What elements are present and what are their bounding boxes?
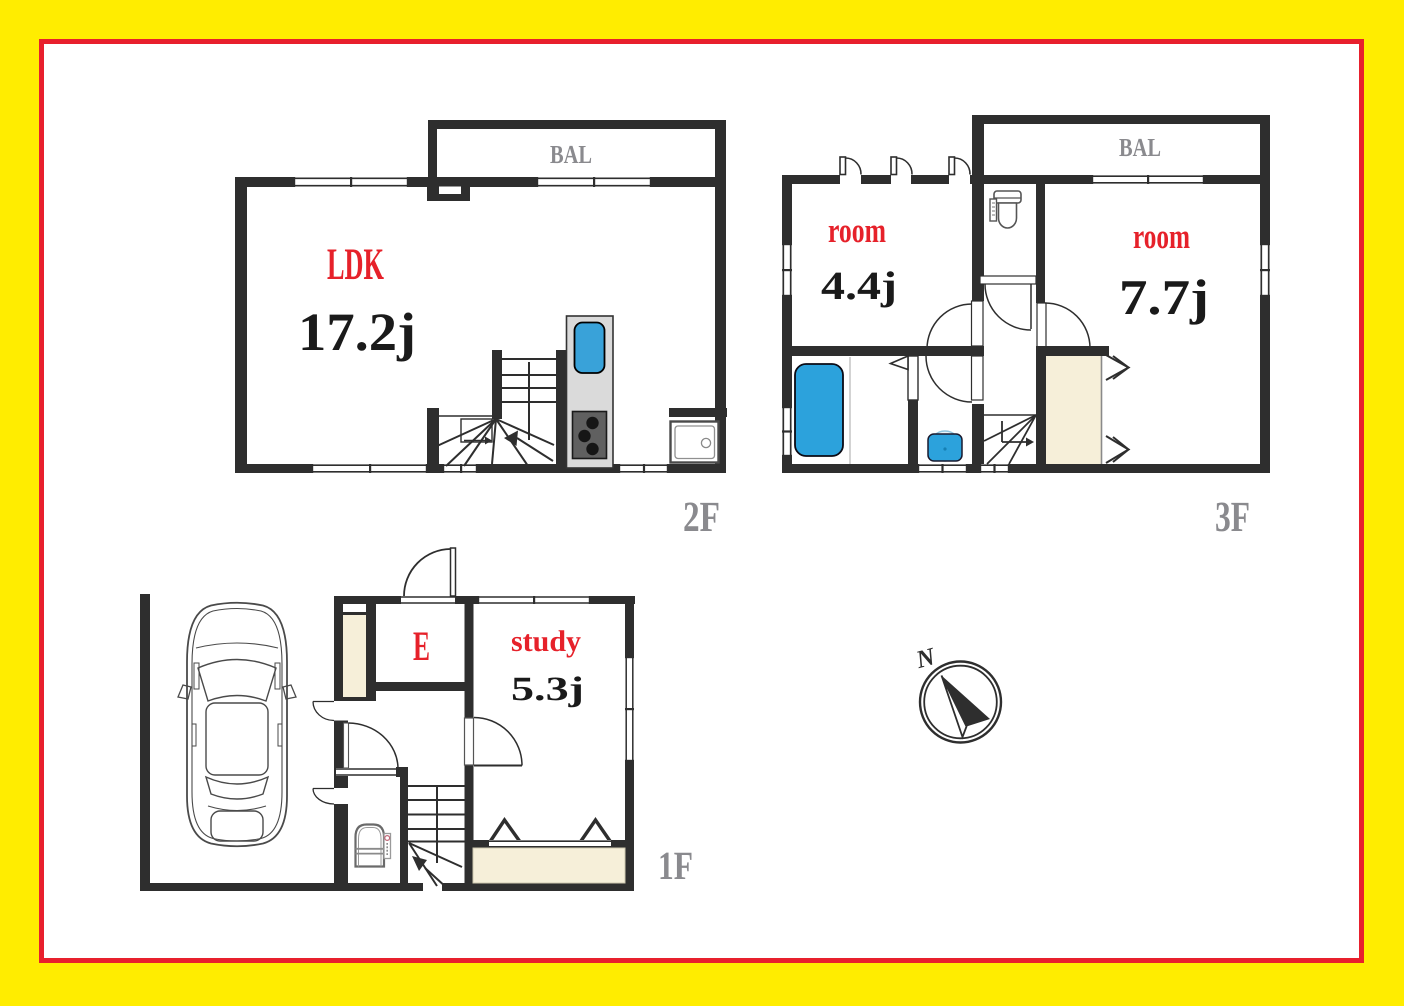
- svg-text:E: E: [413, 624, 430, 670]
- svg-text:study: study: [511, 625, 581, 658]
- svg-text:room: room: [828, 211, 886, 250]
- svg-text:BAL: BAL: [1119, 133, 1161, 162]
- svg-text:7.7j: 7.7j: [1119, 269, 1209, 325]
- svg-text:1F: 1F: [658, 843, 693, 888]
- svg-text:LDK: LDK: [327, 239, 384, 289]
- svg-text:4.4j: 4.4j: [821, 263, 897, 308]
- svg-text:5.3j: 5.3j: [511, 671, 584, 708]
- svg-text:BAL: BAL: [550, 140, 592, 169]
- svg-text:3F: 3F: [1215, 494, 1250, 541]
- svg-text:17.2j: 17.2j: [298, 302, 416, 362]
- svg-text:room: room: [1133, 217, 1190, 256]
- svg-text:2F: 2F: [683, 494, 720, 541]
